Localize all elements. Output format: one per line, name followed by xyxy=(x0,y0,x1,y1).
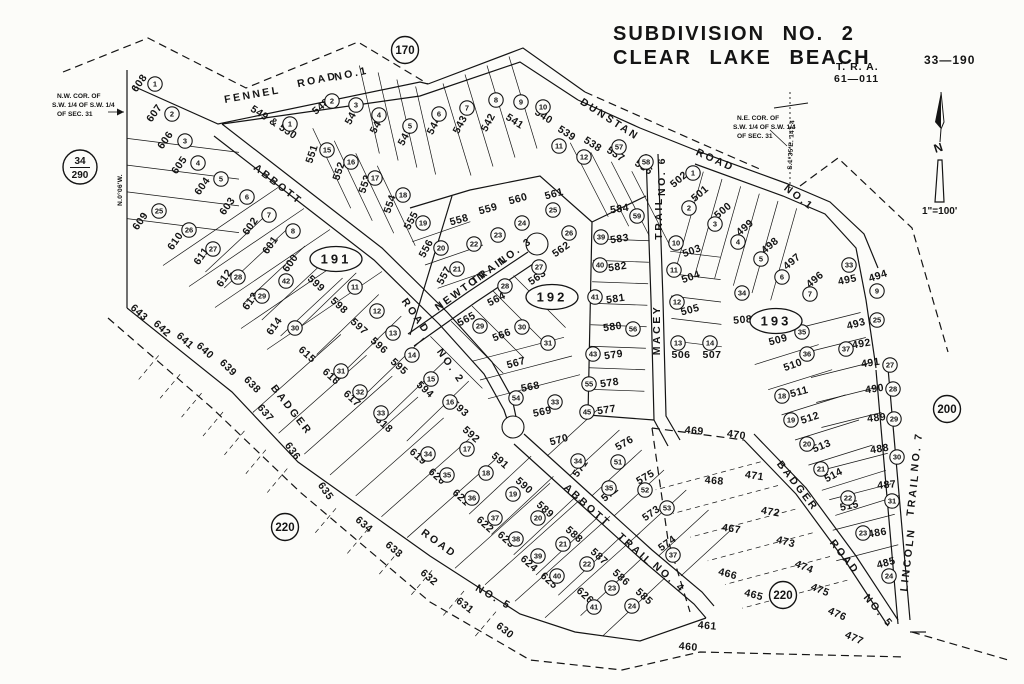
lot-number: 582 xyxy=(607,260,628,275)
lot-number: 561 xyxy=(543,186,564,203)
road-label: NO. 7 xyxy=(909,431,926,472)
circled-number: 21 xyxy=(817,465,825,474)
circled-number: 20 xyxy=(803,440,811,449)
circled-number: 18 xyxy=(778,392,786,401)
lot-line xyxy=(267,469,287,493)
ne-corner-note-3: OF SEC. 31 xyxy=(737,133,773,140)
lot-number: 494 xyxy=(867,268,889,285)
lot-line xyxy=(592,282,648,284)
lot-number: 490 xyxy=(864,382,885,397)
lot-number: 472 xyxy=(760,504,781,519)
lot-number: 635 xyxy=(315,480,336,502)
boundary-dashed-line xyxy=(63,38,428,88)
circled-number: 54 xyxy=(512,394,521,403)
lot-number: 489 xyxy=(867,411,887,425)
circled-number: 23 xyxy=(494,231,502,240)
road-label: NO.1 xyxy=(333,65,369,84)
circled-number: 29 xyxy=(890,415,898,424)
ne-corner-note-2: S.W. 1/4 OF S.W. 1/4 xyxy=(733,124,796,131)
lot-number: 461 xyxy=(697,619,717,633)
block-oval-number: 192 xyxy=(537,290,568,305)
lot-number: 466 xyxy=(717,566,738,583)
circled-number: 36 xyxy=(468,494,476,503)
circled-number: 17 xyxy=(371,174,379,183)
lot-line xyxy=(314,508,336,534)
circled-number: 14 xyxy=(706,339,715,348)
circled-number: 40 xyxy=(553,572,561,581)
circled-number: 56 xyxy=(629,325,637,334)
circled-number: 30 xyxy=(893,453,901,462)
circled-number: 24 xyxy=(518,219,527,228)
scale-note: 1"=100' xyxy=(922,206,957,217)
circled-number: 43 xyxy=(589,350,597,359)
circled-number: 28 xyxy=(501,282,509,291)
circled-number: 35 xyxy=(605,484,613,493)
circled-number: 38 xyxy=(512,535,520,544)
nw-corner-note-1: N.W. COR. OF xyxy=(57,93,101,100)
ne-corner-note-1: N.E. COR. OF xyxy=(737,115,779,122)
circled-number: 29 xyxy=(258,292,266,301)
road-label: NO. 4 xyxy=(650,560,688,596)
lot-number: 495 xyxy=(837,272,858,288)
circled-number: 15 xyxy=(323,146,331,155)
circled-number: 19 xyxy=(787,416,795,425)
circled-number: 20 xyxy=(437,244,445,253)
circled-number: 13 xyxy=(389,329,397,338)
circled-number: 36 xyxy=(803,350,811,359)
lot-number: 633 xyxy=(383,539,405,560)
lot-number: 468 xyxy=(704,474,724,488)
lot-number: 578 xyxy=(599,376,620,391)
lot-line xyxy=(480,356,572,380)
circled-number: 33 xyxy=(551,398,559,407)
circled-number: 41 xyxy=(591,293,599,302)
circled-number: 23 xyxy=(608,584,616,593)
lot-number: 511 xyxy=(789,384,810,400)
lot-number: 551 xyxy=(304,143,321,165)
lot-number: 632 xyxy=(418,567,440,588)
lot-number: 609 xyxy=(130,210,151,232)
lot-line xyxy=(160,374,180,398)
circled-number: 21 xyxy=(559,540,567,549)
circled-number: 2 xyxy=(330,97,334,106)
boundary-dashed-line xyxy=(622,652,905,670)
road-label: TRAIL xyxy=(653,196,665,239)
block-oval-number: 191 xyxy=(321,252,352,267)
lot-line xyxy=(588,389,644,391)
lot-line xyxy=(224,431,244,455)
lot-line xyxy=(182,393,202,417)
lot-number: 471 xyxy=(744,469,765,484)
lot-number: 568 xyxy=(520,379,541,395)
lot-line xyxy=(725,557,830,585)
circled-number: 18 xyxy=(482,469,490,478)
lot-line xyxy=(203,412,223,436)
lot-number: 507 xyxy=(702,349,721,361)
north-letter: N xyxy=(932,140,945,156)
map-title-line1: SUBDIVISION NO. 2 xyxy=(613,23,855,45)
lot-number: 634 xyxy=(353,514,375,535)
circled-number: 17 xyxy=(463,445,471,454)
circled-number: 1 xyxy=(691,169,695,178)
lot-number: 596 xyxy=(368,335,390,357)
lot-line xyxy=(139,355,159,379)
circled-number: 22 xyxy=(583,560,591,569)
circled-number: 12 xyxy=(373,307,381,316)
lot-number: 597 xyxy=(348,316,370,338)
tra-value: 61—011 xyxy=(834,73,879,85)
circled-number: 3 xyxy=(713,220,717,229)
circled-number: 19 xyxy=(419,219,427,228)
circled-number: 28 xyxy=(234,273,242,282)
circled-number: 13 xyxy=(674,339,682,348)
circled-number: 57 xyxy=(615,143,623,152)
circled-number: 11 xyxy=(670,266,678,275)
circled-number: 11 xyxy=(351,283,359,292)
lot-number: 460 xyxy=(678,640,698,654)
circled-number: 6 xyxy=(780,273,784,282)
lot-number: 573 xyxy=(640,503,662,524)
lot-number: 579 xyxy=(603,348,624,363)
circled-number: 5 xyxy=(759,255,763,264)
circled-number: 5 xyxy=(219,175,223,184)
road-label: NO. 6 xyxy=(656,156,668,196)
bearing-label: N.0°06'W. xyxy=(116,174,124,206)
lot-number: 473 xyxy=(775,534,796,551)
circled-number: 37 xyxy=(669,551,677,560)
lot-number: 512 xyxy=(799,410,821,427)
fraction-marker-top: 34 xyxy=(74,156,86,167)
circled-number: 7 xyxy=(267,211,271,220)
nw-corner-note-3: OF SEC. 31 xyxy=(57,111,93,118)
circled-number: 22 xyxy=(844,494,852,503)
sheet-marker-number: 220 xyxy=(275,522,294,534)
lot-line xyxy=(671,318,721,324)
lot-number: 509 xyxy=(767,332,788,349)
circled-number: 58 xyxy=(642,158,650,167)
circled-number: 39 xyxy=(534,552,542,561)
circled-number: 18 xyxy=(399,191,407,200)
lot-number: 465 xyxy=(743,587,764,604)
road-label: TRAIL xyxy=(904,472,921,517)
circled-number: 55 xyxy=(585,380,593,389)
circled-number: 3 xyxy=(354,101,358,110)
circled-number: 10 xyxy=(539,103,547,112)
road-label: LINCOLN xyxy=(898,527,918,592)
lot-number: 566 xyxy=(491,326,513,344)
tra-label: T. R. A. xyxy=(836,61,879,73)
road-label: ROAD xyxy=(694,146,736,174)
lot-number: 636 xyxy=(282,440,303,462)
circled-number: 35 xyxy=(798,328,806,337)
lot-number: 639 xyxy=(217,357,239,379)
lot-number: 475 xyxy=(809,581,831,599)
circled-number: 27 xyxy=(209,245,217,254)
lot-number: 591 xyxy=(489,450,511,472)
circled-number: 10 xyxy=(672,239,680,248)
nw-corner-note-2: S.W. 1/4 OF S.W. 1/4 xyxy=(52,102,115,109)
circled-number: 22 xyxy=(470,240,478,249)
lot-number: 469 xyxy=(684,424,704,438)
circled-number: 24 xyxy=(628,602,637,611)
road-label: NO. 5 xyxy=(473,582,514,612)
lot-number: 493 xyxy=(845,316,866,333)
map-title-line2: CLEAR LAKE BEACH xyxy=(613,47,871,69)
circled-number: 31 xyxy=(337,367,345,376)
circled-number: 11 xyxy=(555,142,563,151)
lot-number: 559 xyxy=(477,201,498,218)
lot-line xyxy=(330,397,418,475)
circled-number: 53 xyxy=(663,504,671,513)
circled-number: 19 xyxy=(509,490,517,499)
road-label: ROAD xyxy=(419,527,459,561)
lot-number: 470 xyxy=(726,428,747,443)
circled-number: 27 xyxy=(535,263,543,272)
lot-number: 474 xyxy=(793,558,815,576)
circled-number: 9 xyxy=(519,98,523,107)
road-label: MACEY xyxy=(651,305,663,355)
lot-line xyxy=(294,273,356,333)
circled-number: 16 xyxy=(446,398,454,407)
circled-number: 14 xyxy=(408,351,417,360)
lot-number: 577 xyxy=(596,403,617,418)
circled-number: 25 xyxy=(873,316,881,325)
circled-number: 40 xyxy=(596,261,604,270)
circled-number: 27 xyxy=(886,361,894,370)
circled-number: 30 xyxy=(518,323,526,332)
lot-number: 603 xyxy=(217,195,238,217)
circled-number: 34 xyxy=(424,450,433,459)
road-label: FENNEL xyxy=(223,84,281,106)
lot-number: 542 xyxy=(479,111,499,133)
lot-number: 580 xyxy=(602,320,623,335)
lot-line xyxy=(262,262,324,320)
lot-number: 488 xyxy=(869,442,890,457)
road-label: BADGER xyxy=(268,383,315,438)
lot-number: 643 xyxy=(128,302,150,324)
lot-number: 607 xyxy=(144,102,165,124)
lot-number: 602 xyxy=(240,215,261,237)
circled-number: 12 xyxy=(673,298,681,307)
lot-number: 638 xyxy=(241,374,263,396)
lot-number: 477 xyxy=(843,629,865,648)
circled-number: 33 xyxy=(845,261,853,270)
block-oval-number: 193 xyxy=(761,314,792,329)
lot-number: 476 xyxy=(826,605,848,624)
lot-number: 630 xyxy=(494,620,516,641)
road-line xyxy=(410,176,592,222)
circled-number: 59 xyxy=(633,212,641,221)
circled-number: 1 xyxy=(288,120,292,129)
road-label: NO. 5 xyxy=(861,592,896,630)
lot-number: 562 xyxy=(550,239,572,260)
circled-number: 1 xyxy=(153,80,157,89)
circled-number: 3 xyxy=(183,137,187,146)
lot-number: 560 xyxy=(507,191,528,208)
sheet-marker-number: 220 xyxy=(773,590,792,602)
circled-number: 25 xyxy=(155,207,163,216)
lot-number: 631 xyxy=(454,595,476,616)
lot-number: 543 xyxy=(451,113,471,135)
lot-number: 642 xyxy=(151,318,173,340)
lot-line xyxy=(589,368,645,370)
lot-number: 491 xyxy=(860,356,881,371)
circled-number: 7 xyxy=(465,104,469,113)
plat-map-page: SUBDIVISION NO. 2 CLEAR LAKE BEACH T. R.… xyxy=(0,0,1024,684)
circled-number: 23 xyxy=(859,529,867,538)
lot-number: 497 xyxy=(781,251,803,272)
fraction-marker-bottom: 290 xyxy=(72,170,89,181)
circled-number: 28 xyxy=(889,385,897,394)
circled-number: 21 xyxy=(453,265,461,274)
lot-number: 504 xyxy=(680,268,702,286)
lot-number: 604 xyxy=(192,175,213,197)
circled-number: 8 xyxy=(291,227,295,236)
lot-number: 615 xyxy=(296,344,318,366)
circled-number: 26 xyxy=(565,229,573,238)
lot-number: 576 xyxy=(613,433,635,453)
lot-number: 598 xyxy=(328,295,350,317)
circled-number: 6 xyxy=(437,110,441,119)
circled-number: 5 xyxy=(408,122,412,131)
circled-number: 25 xyxy=(549,206,557,215)
sheet-marker-number: 200 xyxy=(937,404,956,416)
circled-number: 2 xyxy=(170,110,174,119)
circled-number: 39 xyxy=(597,233,605,242)
circled-number: 30 xyxy=(291,324,299,333)
lot-number: 606 xyxy=(155,129,176,151)
lot-number: 614 xyxy=(264,315,285,337)
circled-number: 37 xyxy=(491,514,499,523)
culdesac xyxy=(502,416,524,438)
circled-number: 26 xyxy=(185,226,193,235)
road-label: ROAD xyxy=(399,296,432,336)
circled-number: 31 xyxy=(544,339,552,348)
lot-number: 487 xyxy=(877,478,897,492)
circled-number: 29 xyxy=(476,322,484,331)
lot-number: 510 xyxy=(782,356,804,374)
circled-number: 7 xyxy=(808,290,812,299)
road-label: ROAD xyxy=(296,70,339,90)
lot-number: 600 xyxy=(280,252,301,274)
lot-number: 570 xyxy=(548,432,569,449)
circled-number: 34 xyxy=(738,289,747,298)
subdivision-plat-map: SUBDIVISION NO. 2 CLEAR LAKE BEACH T. R.… xyxy=(0,0,1024,684)
sheet-number: 33—190 xyxy=(924,53,975,67)
lot-number: 640 xyxy=(194,340,216,362)
circled-number: 31 xyxy=(888,497,896,506)
circled-number: 34 xyxy=(574,457,583,466)
circled-number: 2 xyxy=(687,204,691,213)
circled-number: 8 xyxy=(494,96,498,105)
circled-number: 20 xyxy=(534,514,542,523)
lot-number: 583 xyxy=(609,232,630,247)
lot-number: 605 xyxy=(169,154,190,176)
circled-number: 33 xyxy=(377,409,385,418)
circled-number: 16 xyxy=(347,158,355,167)
circled-number: 37 xyxy=(842,345,850,354)
circled-number: 15 xyxy=(427,375,435,384)
lot-number: 637 xyxy=(255,402,276,424)
circled-number: 35 xyxy=(443,471,451,480)
boundary-dashed-line xyxy=(912,632,1008,660)
circled-number: 52 xyxy=(641,486,649,495)
circled-number: 41 xyxy=(590,603,598,612)
lot-number: 608 xyxy=(129,72,150,94)
lot-line xyxy=(474,612,496,638)
circled-number: 42 xyxy=(282,277,290,286)
boundary-dashed-line xyxy=(108,318,622,670)
lot-line xyxy=(591,152,629,226)
lot-number: 492 xyxy=(851,336,872,351)
circled-number: 51 xyxy=(614,458,622,467)
circled-number: 9 xyxy=(875,287,879,296)
lot-number: 558 xyxy=(448,212,469,229)
circled-number: 24 xyxy=(885,572,894,581)
sheet-marker-number: 170 xyxy=(395,45,414,57)
lot-number: 467 xyxy=(721,522,742,537)
lot-line xyxy=(246,450,266,474)
circled-number: 45 xyxy=(583,408,591,417)
circled-number: 6 xyxy=(245,193,249,202)
lot-number: 506 xyxy=(671,349,690,361)
circled-number: 12 xyxy=(580,153,588,162)
circled-number: 32 xyxy=(356,388,364,397)
lot-number: 584 xyxy=(609,202,630,217)
lot-number: 541 xyxy=(503,111,525,131)
